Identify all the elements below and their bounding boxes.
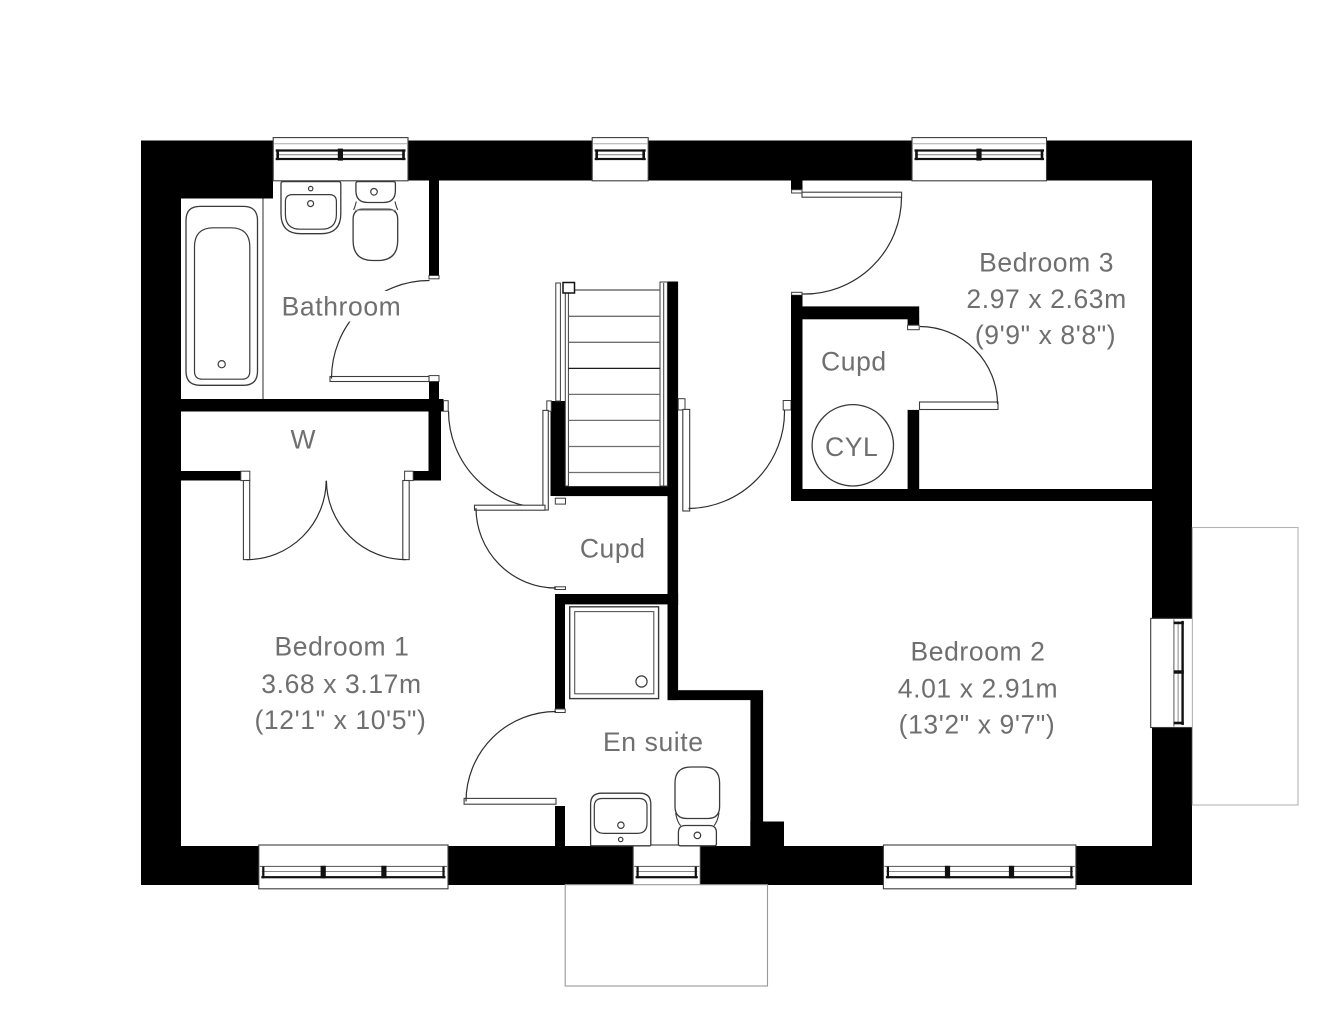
svg-text:(13'2" x 9'7"): (13'2" x 9'7")	[899, 710, 1056, 740]
svg-text:Cupd: Cupd	[821, 347, 887, 377]
svg-text:En suite: En suite	[603, 727, 704, 757]
svg-text:Bathroom: Bathroom	[282, 292, 402, 322]
svg-text:(9'9" x 8'8"): (9'9" x 8'8")	[975, 320, 1116, 350]
svg-text:4.01 x 2.91m: 4.01 x 2.91m	[898, 674, 1058, 704]
svg-text:Cupd: Cupd	[580, 534, 646, 564]
svg-text:(12'1" x 10'5"): (12'1" x 10'5")	[255, 705, 427, 735]
svg-text:2.97 x 2.63m: 2.97 x 2.63m	[966, 284, 1126, 314]
svg-text:Bedroom 1: Bedroom 1	[274, 632, 409, 662]
svg-text:Bedroom 2: Bedroom 2	[910, 637, 1045, 667]
svg-text:W: W	[290, 425, 316, 455]
svg-text:Bedroom 3: Bedroom 3	[979, 248, 1114, 278]
svg-text:CYL: CYL	[825, 432, 878, 462]
svg-text:3.68 x 3.17m: 3.68 x 3.17m	[261, 669, 421, 699]
